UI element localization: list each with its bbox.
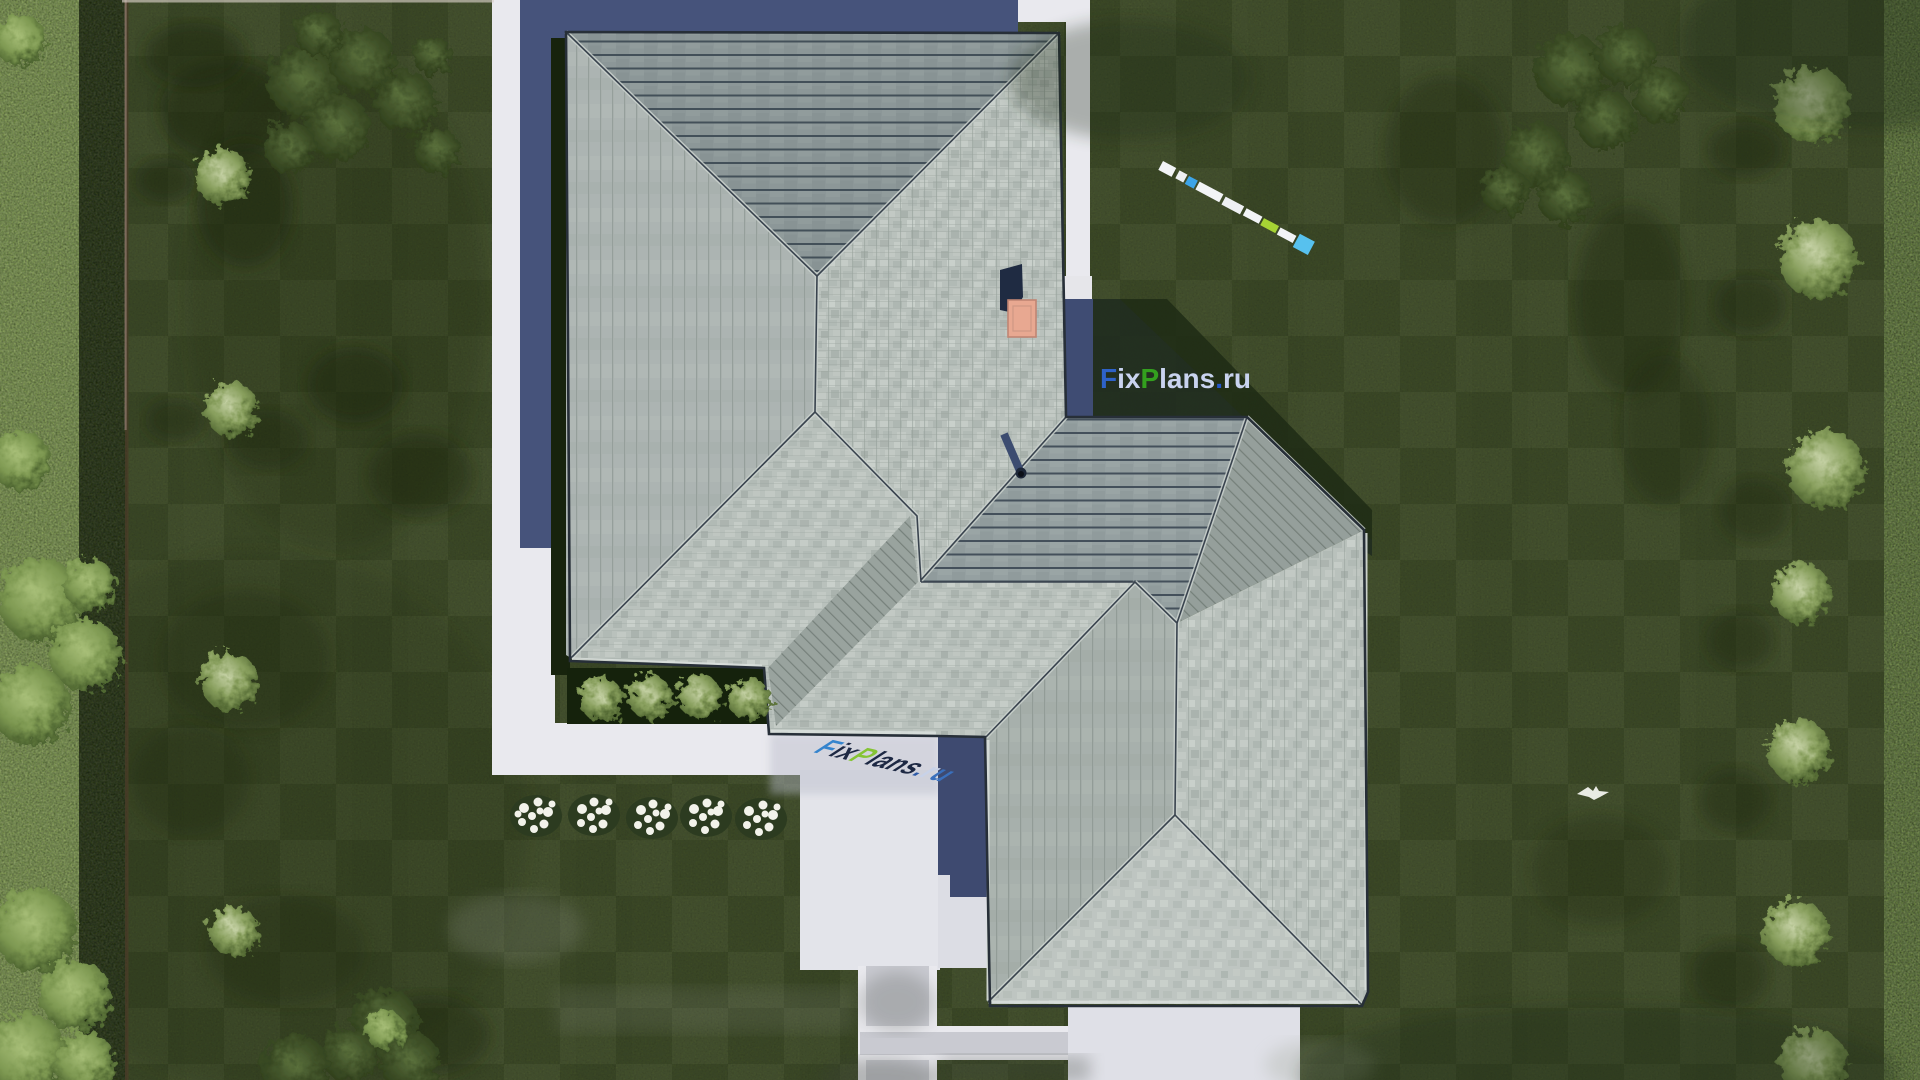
svg-text:FixPlans.ru: FixPlans.ru: [1100, 363, 1251, 394]
